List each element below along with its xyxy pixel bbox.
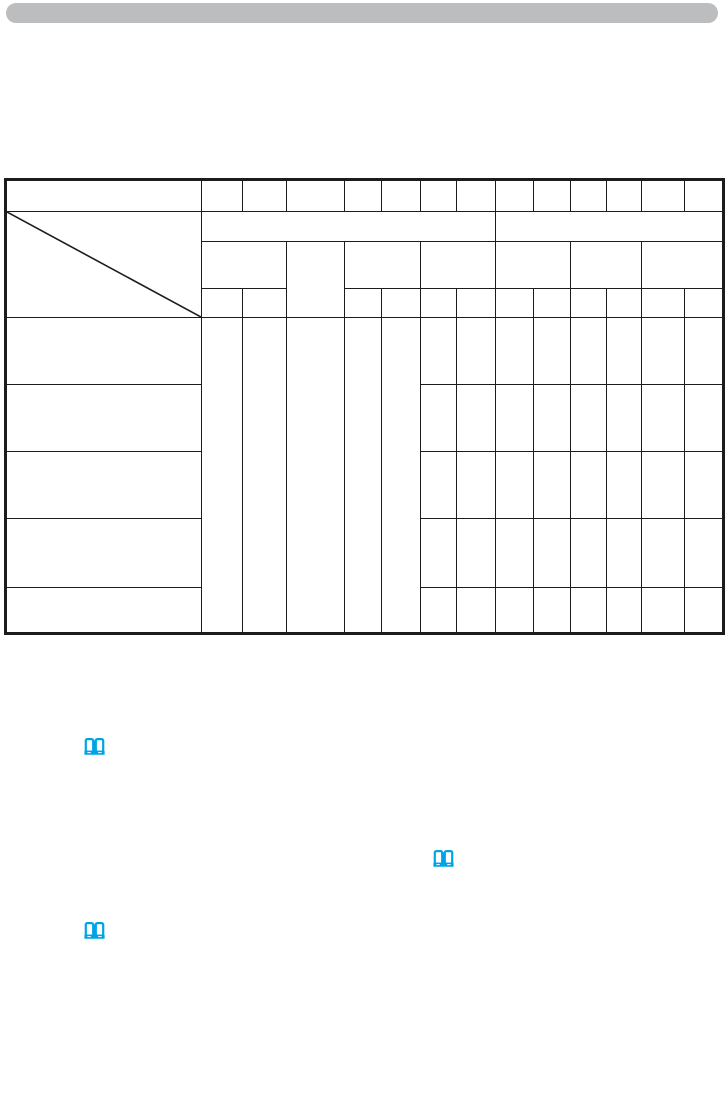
table-cell: [685, 180, 724, 212]
table-cell: [457, 519, 496, 588]
table-cell: [382, 318, 421, 634]
table-cell: [534, 318, 571, 385]
table-cell: [6, 452, 202, 519]
table-cell: [421, 318, 457, 385]
table-cell: [6, 180, 202, 212]
table-cell: [287, 180, 345, 212]
table-cell: [457, 180, 496, 212]
table-cell: [202, 242, 287, 289]
table-cell: [421, 289, 457, 318]
table-cell: [685, 318, 724, 385]
table-cell: [642, 289, 685, 318]
table-cell: [421, 452, 457, 519]
table-cell: [642, 519, 685, 588]
table-cell: [202, 289, 243, 318]
table-cell: [496, 242, 571, 289]
table-cell: [287, 318, 345, 634]
table-cell: [685, 385, 724, 452]
table-cell: [421, 385, 457, 452]
table-cell: [642, 452, 685, 519]
table-cell: [421, 180, 457, 212]
table-cell: [642, 242, 724, 289]
blank-signal-table: [4, 178, 725, 635]
table-cell: [382, 180, 421, 212]
diagonal-header-cell: [6, 212, 202, 318]
table-cell: [243, 180, 287, 212]
table-cell: [287, 242, 345, 318]
table-cell: [607, 385, 642, 452]
table-cell: [571, 452, 607, 519]
table-cell: [571, 385, 607, 452]
table-cell: [607, 289, 642, 318]
table-cell: [534, 385, 571, 452]
table-cell: [607, 588, 642, 634]
open-book-icon: [84, 922, 105, 941]
table-cell: [685, 519, 724, 588]
table-cell: [607, 180, 642, 212]
table-cell: [457, 318, 496, 385]
table-cell: [421, 588, 457, 634]
table-cell: [382, 289, 421, 318]
table-cell: [345, 180, 382, 212]
table-cell: [607, 318, 642, 385]
table-cell: [534, 452, 571, 519]
open-book-icon: [84, 738, 105, 757]
table-cell: [496, 385, 534, 452]
table-cell: [571, 318, 607, 385]
table-cell: [6, 519, 202, 588]
table-cell: [243, 318, 287, 634]
table-cell: [642, 385, 685, 452]
table-cell: [202, 212, 496, 242]
document-page: [0, 0, 726, 1106]
table-cell: [496, 318, 534, 385]
table-cell: [457, 385, 496, 452]
table-cell: [534, 289, 571, 318]
table-cell: [534, 519, 571, 588]
open-book-icon: [433, 850, 454, 869]
table-cell: [496, 588, 534, 634]
table-cell: [202, 180, 243, 212]
section-header-bar: [6, 3, 718, 23]
table-cell: [496, 212, 724, 242]
table-cell: [345, 289, 382, 318]
table-cell: [496, 519, 534, 588]
table-cell: [202, 318, 243, 634]
table-cell: [421, 242, 496, 289]
table-cell: [6, 588, 202, 634]
table-cell: [642, 318, 685, 385]
table-cell: [607, 452, 642, 519]
table-cell: [496, 289, 534, 318]
table-cell: [6, 385, 202, 452]
table-cell: [571, 242, 642, 289]
table-cell: [457, 289, 496, 318]
table-cell: [642, 180, 685, 212]
table-cell: [685, 289, 724, 318]
table-cell: [571, 519, 607, 588]
table-cell: [457, 588, 496, 634]
table-cell: [345, 242, 421, 289]
table-cell: [571, 289, 607, 318]
table-cell: [496, 452, 534, 519]
table-cell: [421, 519, 457, 588]
table-cell: [6, 318, 202, 385]
table-cell: [642, 588, 685, 634]
table-cell: [345, 318, 382, 634]
table-cell: [534, 588, 571, 634]
table-cell: [243, 289, 287, 318]
table-cell: [534, 180, 571, 212]
table-cell: [571, 180, 607, 212]
table-cell: [685, 588, 724, 634]
table-cell: [685, 452, 724, 519]
table-cell: [457, 452, 496, 519]
table-cell: [607, 519, 642, 588]
diagonal-line: [7, 212, 201, 317]
table-cell: [496, 180, 534, 212]
table-cell: [571, 588, 607, 634]
